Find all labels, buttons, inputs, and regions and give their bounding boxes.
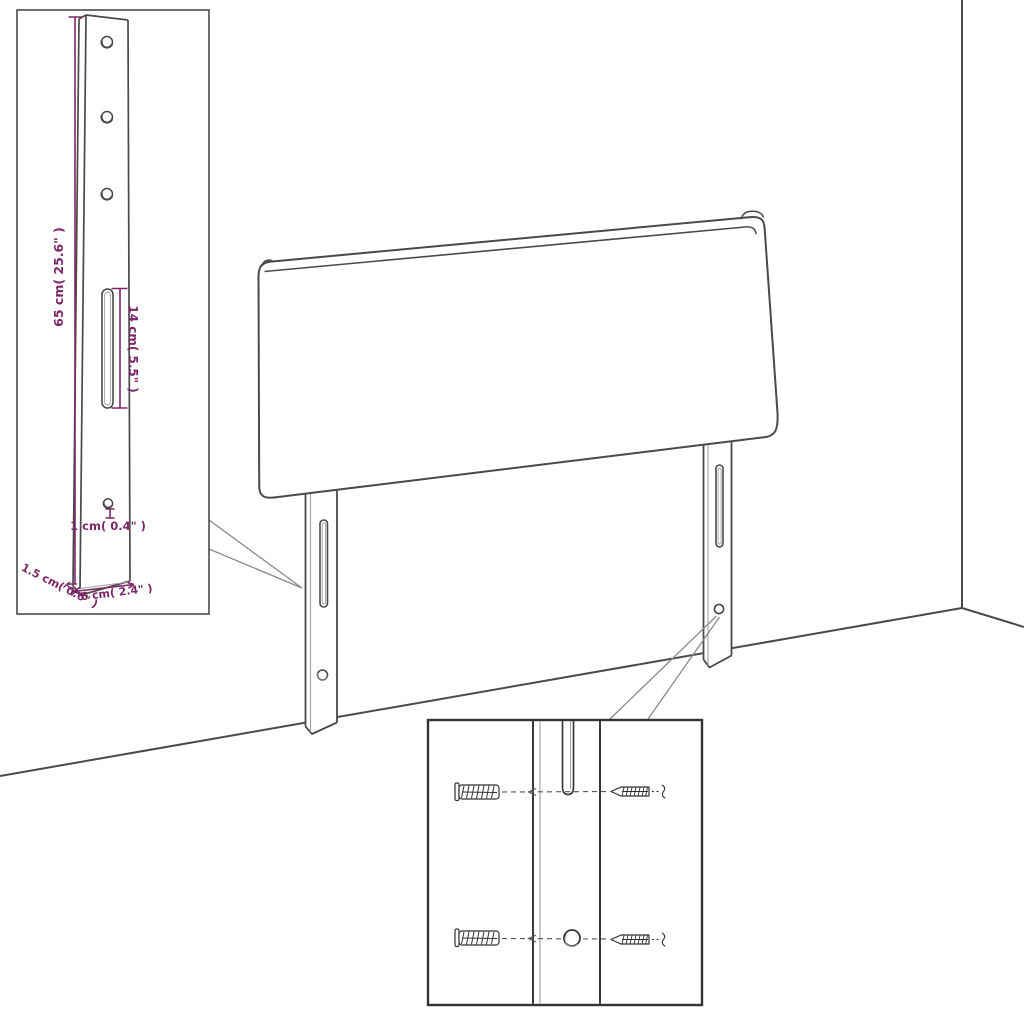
dim-hole-label: 1 cm( 0.4" ) (70, 519, 146, 533)
bracket-drawing (73, 15, 130, 595)
mounting-hardware-inset (428, 720, 702, 1005)
bracket-callout-line-lower (209, 549, 302, 588)
right-leg-slot (716, 465, 723, 547)
right-leg-screw-hole (714, 604, 723, 613)
bracket-slot (102, 289, 113, 408)
wall-plug-icon (455, 929, 499, 947)
bracket-callout-line-upper (209, 520, 302, 588)
dim-height-label: 65 cm( 25.6" ) (51, 227, 66, 327)
wall-plug-icon (455, 783, 499, 801)
headboard-assembly-diagram: 65 cm( 25.6" ) 14 cm( 5.5" ) 1 cm( 0.4" … (0, 0, 1024, 1024)
dim-slot-label: 14 cm( 5.5" ) (126, 305, 140, 392)
floor-line-right (962, 608, 1024, 627)
headboard-left-leg (306, 486, 338, 734)
product-diagram-canvas: 65 cm( 25.6" ) 14 cm( 5.5" ) 1 cm( 0.4" … (0, 0, 1024, 1024)
callout-leader-lines (209, 520, 720, 719)
headboard-panel (259, 211, 778, 497)
left-leg-slot (320, 520, 328, 607)
bracket-dimension-inset: 65 cm( 25.6" ) 14 cm( 5.5" ) 1 cm( 0.4" … (17, 10, 209, 614)
